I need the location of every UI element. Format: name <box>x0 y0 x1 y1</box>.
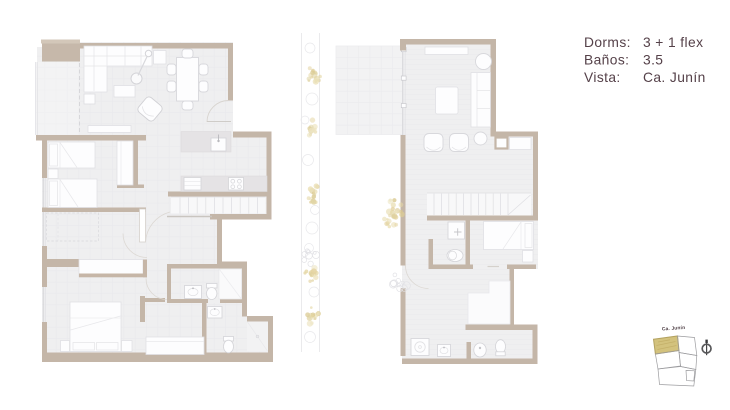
svg-text:3.5: 3.5 <box>643 52 663 67</box>
svg-text:3 + 1 flex: 3 + 1 flex <box>643 35 703 50</box>
svg-text:Baños:: Baños: <box>584 52 629 67</box>
svg-text:Ca. Junín: Ca. Junín <box>643 70 706 85</box>
svg-text:Vista:: Vista: <box>584 70 621 85</box>
svg-text:Dorms:: Dorms: <box>584 35 631 50</box>
